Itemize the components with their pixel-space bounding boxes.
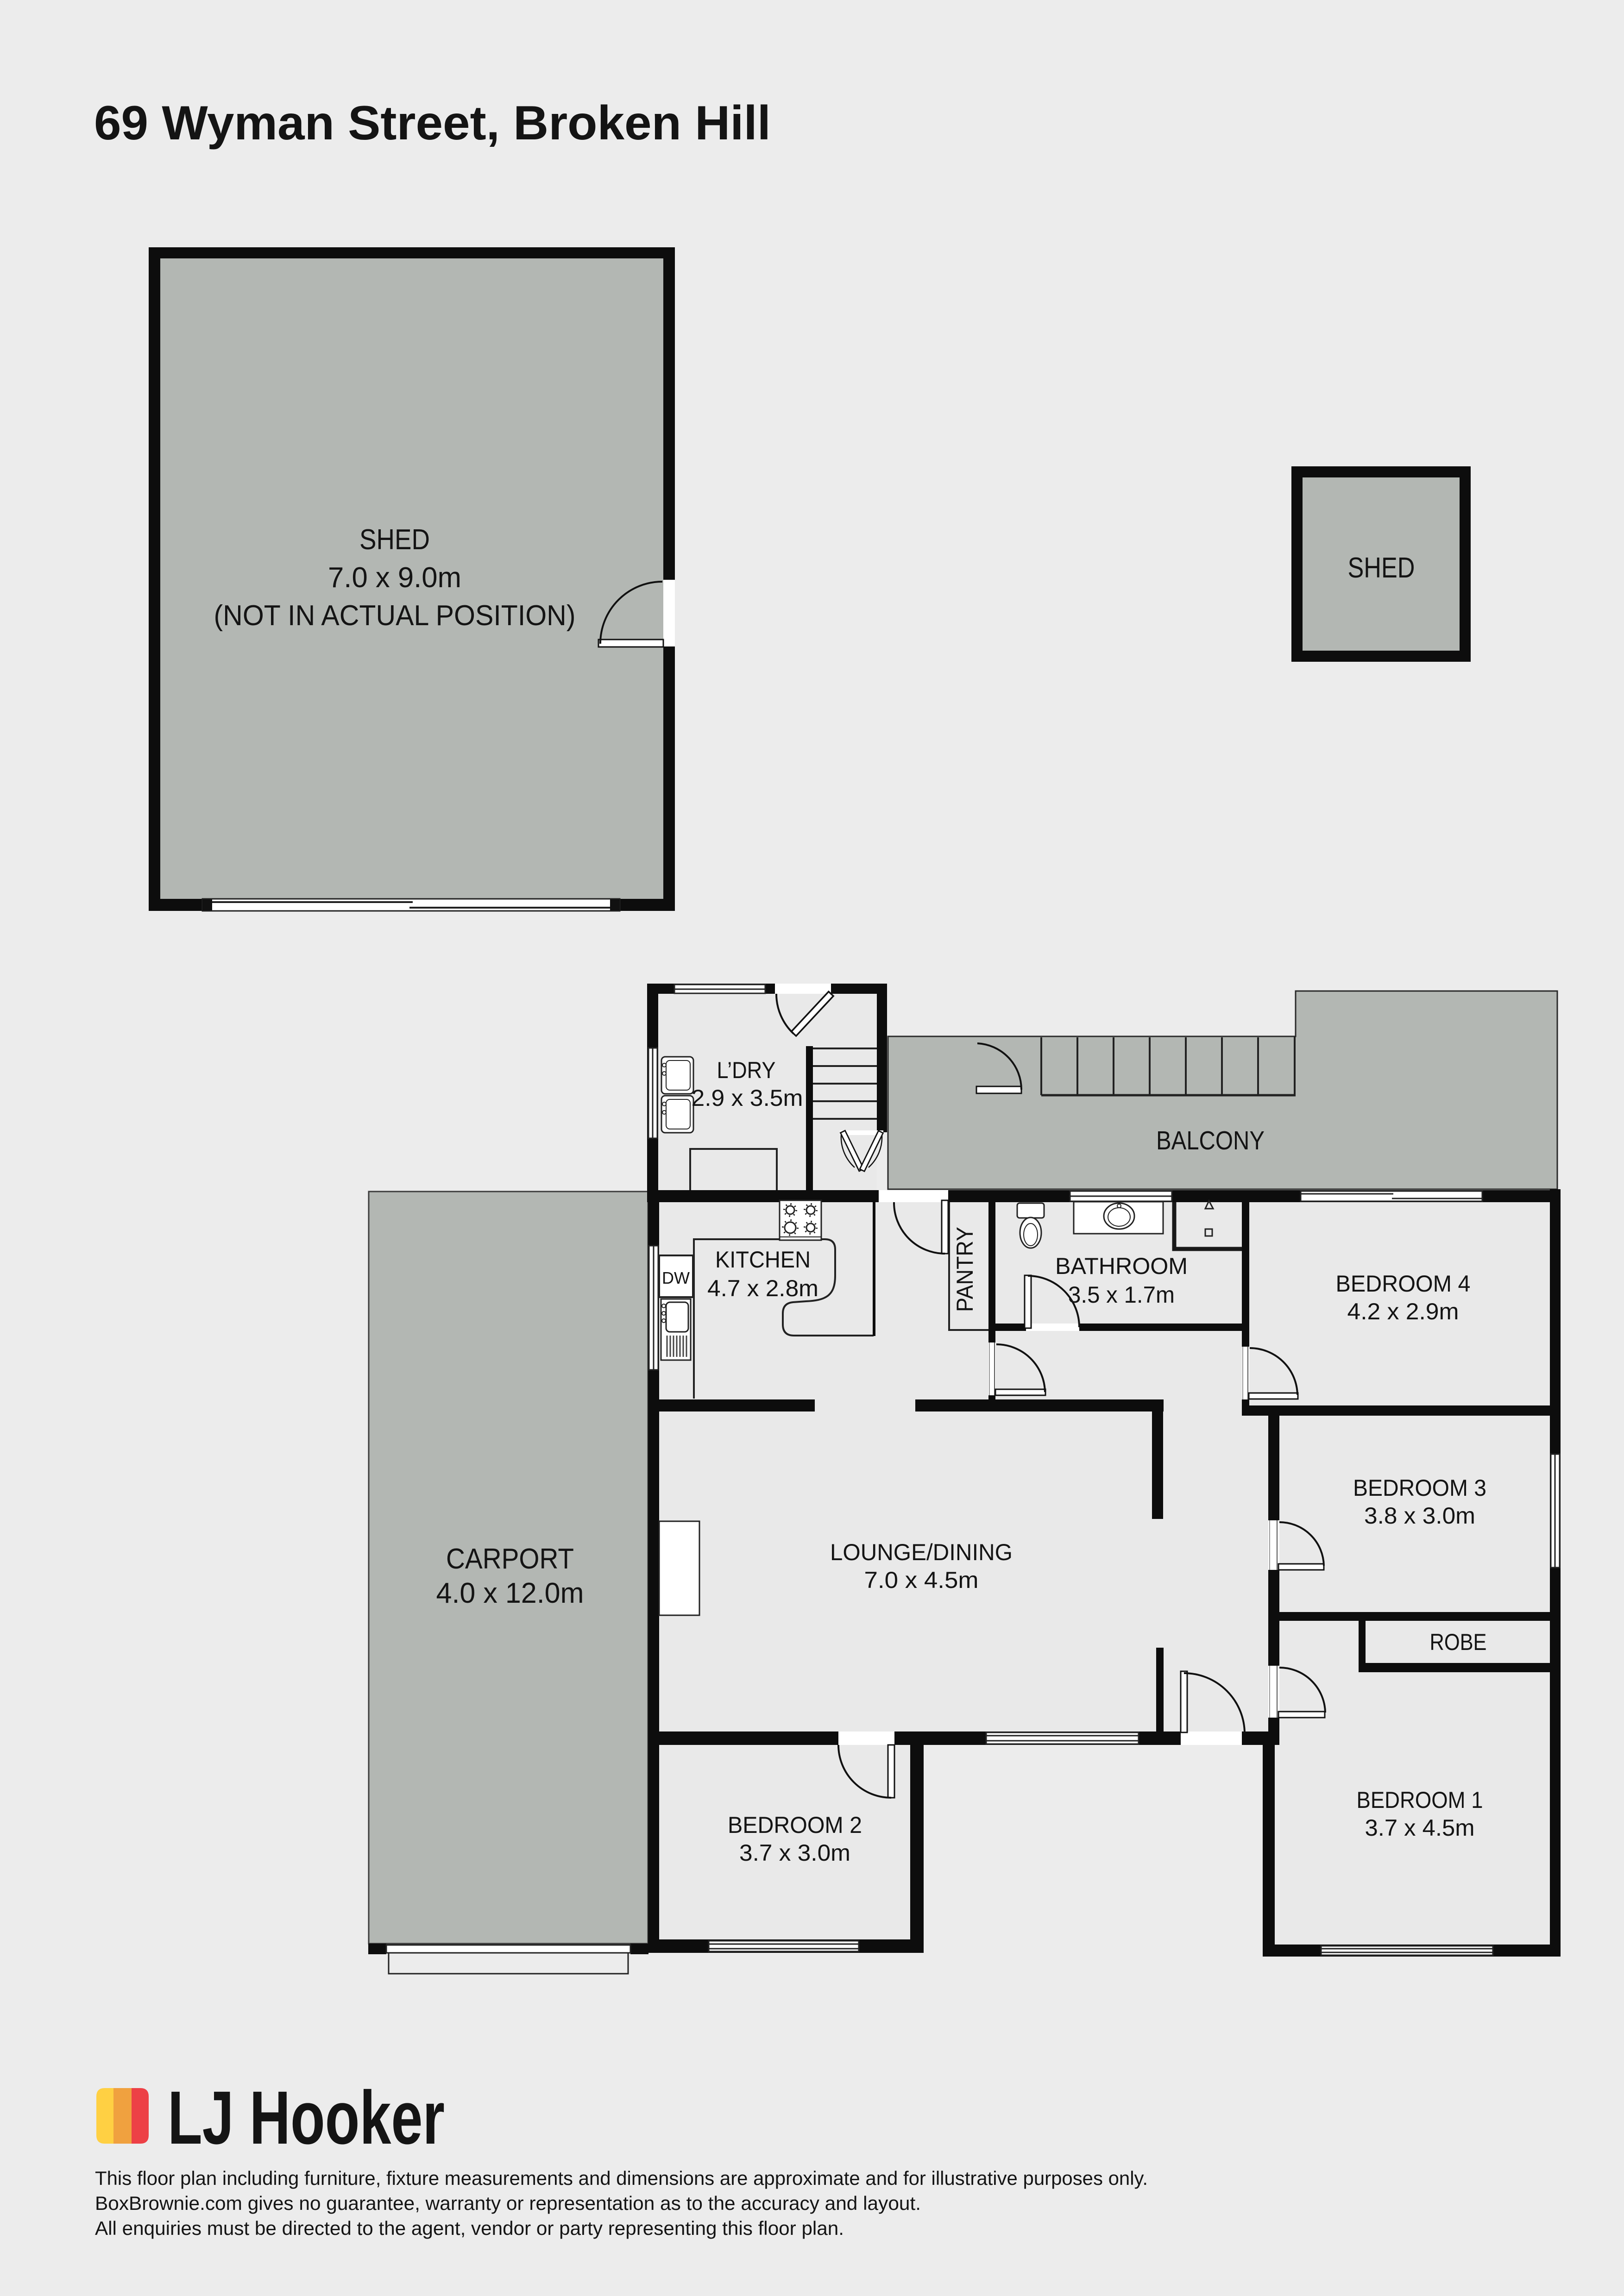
svg-text:BEDROOM 4: BEDROOM 4: [1336, 1271, 1471, 1297]
svg-text:3.5 x 1.7m: 3.5 x 1.7m: [1068, 1282, 1175, 1308]
svg-text:4.7 x 2.8m: 4.7 x 2.8m: [707, 1275, 818, 1301]
svg-text:BEDROOM 3: BEDROOM 3: [1353, 1475, 1486, 1501]
svg-text:LJ Hooker: LJ Hooker: [168, 2075, 445, 2160]
svg-text:3.7 x 4.5m: 3.7 x 4.5m: [1365, 1815, 1475, 1841]
svg-text:All enquiries must be directed: All enquiries must be directed to the ag…: [95, 2217, 844, 2239]
svg-text:2.9 x 3.5m: 2.9 x 3.5m: [692, 1085, 803, 1111]
svg-text:SHED: SHED: [1348, 552, 1415, 584]
svg-text:69 Wyman Street, Broken Hill: 69 Wyman Street, Broken Hill: [94, 96, 771, 150]
svg-text:7.0 x 4.5m: 7.0 x 4.5m: [864, 1567, 979, 1593]
svg-text:This floor plan including furn: This floor plan including furniture, fix…: [95, 2167, 1148, 2189]
svg-text:4.0 x 12.0m: 4.0 x 12.0m: [436, 1577, 584, 1609]
svg-text:KITCHEN: KITCHEN: [715, 1247, 811, 1273]
svg-text:(NOT IN ACTUAL POSITION): (NOT IN ACTUAL POSITION): [214, 600, 576, 632]
svg-text:3.7 x 3.0m: 3.7 x 3.0m: [739, 1840, 850, 1866]
svg-text:DW: DW: [662, 1268, 690, 1287]
svg-text:BATHROOM: BATHROOM: [1055, 1253, 1188, 1279]
svg-text:BALCONY: BALCONY: [1156, 1126, 1265, 1155]
svg-text:3.8 x 3.0m: 3.8 x 3.0m: [1364, 1503, 1475, 1529]
svg-text:LOUNGE/DINING: LOUNGE/DINING: [830, 1539, 1013, 1565]
svg-text:7.0 x 9.0m: 7.0 x 9.0m: [328, 562, 461, 594]
svg-text:CARPORT: CARPORT: [446, 1543, 574, 1575]
svg-text:BEDROOM 1: BEDROOM 1: [1357, 1787, 1483, 1813]
svg-text:4.2 x 2.9m: 4.2 x 2.9m: [1347, 1299, 1459, 1324]
svg-text:BEDROOM 2: BEDROOM 2: [728, 1812, 862, 1838]
svg-text:L’DRY: L’DRY: [717, 1057, 776, 1083]
svg-text:SHED: SHED: [359, 524, 430, 556]
svg-text:BoxBrownie.com gives no guaran: BoxBrownie.com gives no guarantee, warra…: [95, 2192, 921, 2214]
svg-text:PANTRY: PANTRY: [952, 1227, 978, 1312]
svg-text:ROBE: ROBE: [1430, 1629, 1487, 1655]
